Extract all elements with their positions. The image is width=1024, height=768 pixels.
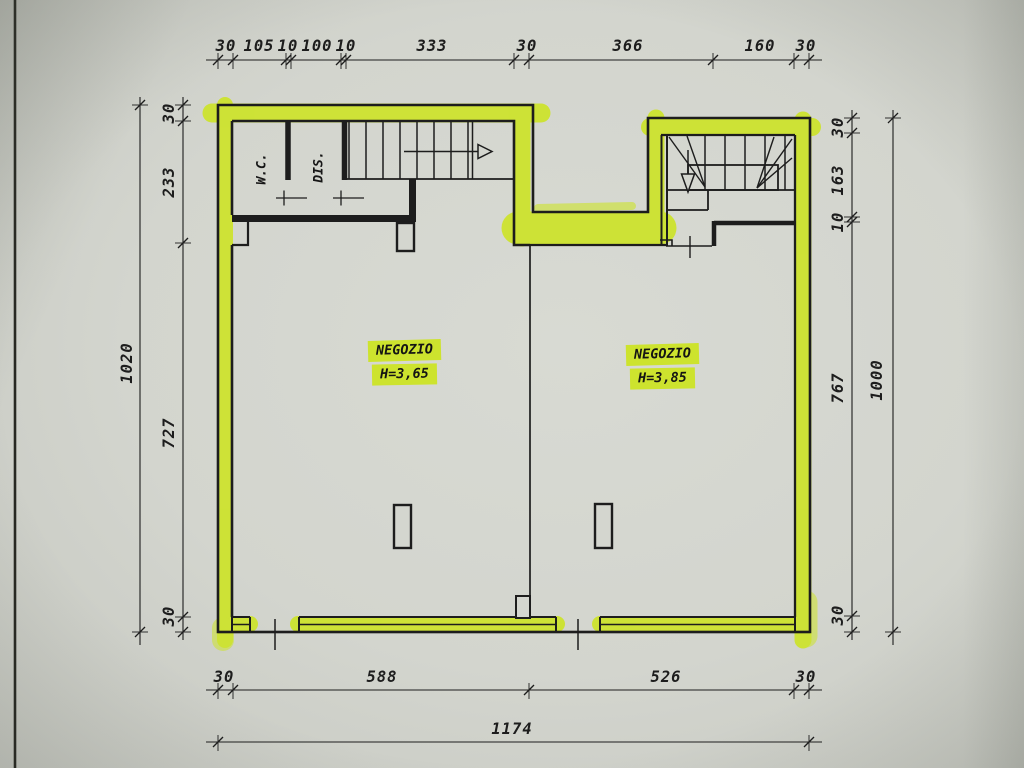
- dim-label: 233: [160, 167, 178, 198]
- dim-label: 588: [367, 668, 398, 686]
- stair-up-left: [346, 122, 514, 179]
- dim-label: 30: [160, 103, 178, 124]
- room-name: NEGOZIO: [367, 339, 440, 362]
- dim-label: 30: [216, 37, 237, 55]
- room-name: NEGOZIO: [625, 343, 698, 366]
- dim-label: 30: [160, 606, 178, 627]
- pillar: [394, 505, 411, 548]
- scanned-floor-plan-page: 30 105 10 100 10 333 30 366 160 30 30 23…: [0, 0, 1024, 768]
- dim-label: 30: [796, 668, 817, 686]
- pillar: [595, 504, 612, 548]
- wall-highlights: [212, 105, 812, 640]
- divider-end-pier: [516, 596, 530, 618]
- room-label-dis: DIS.: [312, 151, 327, 182]
- pillar: [397, 223, 414, 251]
- dim-label: 767: [829, 373, 847, 404]
- dim-label: 30: [829, 605, 847, 626]
- dim-label: 1174: [491, 720, 532, 738]
- dim-label: 366: [613, 37, 644, 55]
- room-label-negozio-left: NEGOZIO H=3,65: [364, 340, 444, 385]
- dim-label: 30: [517, 37, 538, 55]
- dim-label: 727: [160, 418, 178, 449]
- dim-label: 10: [278, 37, 299, 55]
- dim-label: 105: [244, 37, 275, 55]
- building-outline: [218, 105, 810, 632]
- dim-label: 10: [829, 212, 847, 233]
- dim-label: 100: [302, 37, 333, 55]
- stair-down-right: [667, 135, 795, 210]
- pillars: [394, 223, 612, 548]
- dim-label: 30: [796, 37, 817, 55]
- room-label-negozio-right: NEGOZIO H=3,85: [622, 344, 702, 389]
- dim-label: 333: [417, 37, 448, 55]
- room-height: H=3,65: [371, 363, 436, 385]
- dim-label: 30: [214, 668, 235, 686]
- dim-label: 10: [336, 37, 357, 55]
- dim-label: 1020: [118, 342, 136, 383]
- room-label-wc: W.C.: [255, 153, 270, 184]
- dim-label: 160: [745, 37, 776, 55]
- room-height: H=3,85: [629, 367, 694, 389]
- door-wc: [276, 191, 307, 206]
- door-dis: [333, 191, 364, 206]
- dim-label: 163: [829, 165, 847, 196]
- dim-label: 526: [651, 668, 682, 686]
- dim-label: 30: [829, 117, 847, 138]
- dim-label: 1000: [868, 359, 886, 400]
